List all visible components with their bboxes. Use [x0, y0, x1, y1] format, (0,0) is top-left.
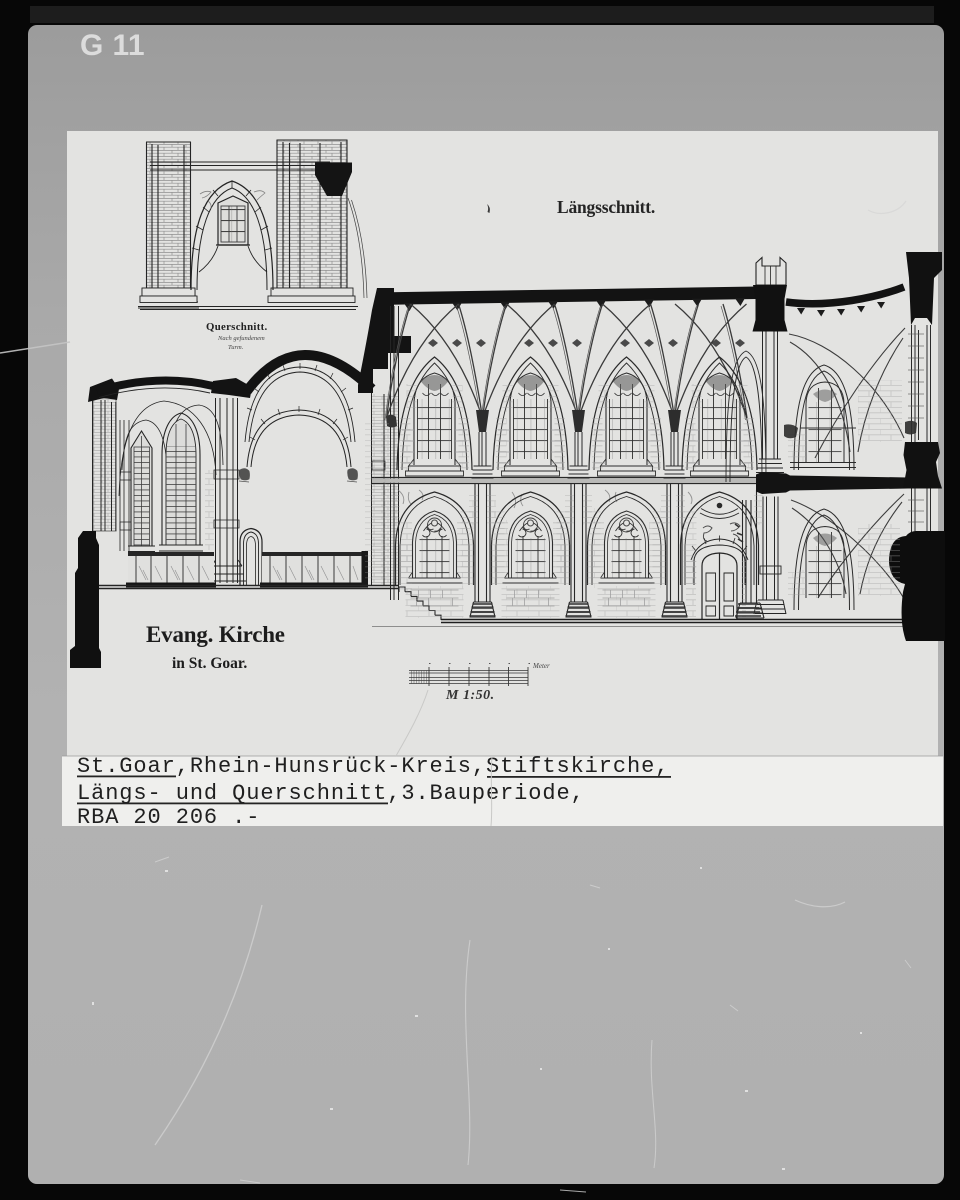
svg-text:Nach gefundenem: Nach gefundenem — [217, 335, 265, 342]
svg-text:Evang. Kirche: Evang. Kirche — [146, 622, 285, 647]
svg-text:Turm.: Turm. — [228, 344, 244, 351]
svg-text:Längsschnitt.: Längsschnitt. — [557, 197, 655, 217]
svg-text:G 11: G 11 — [80, 29, 145, 62]
svg-text:in St. Goar.: in St. Goar. — [172, 655, 247, 672]
svg-text:Längs- und Querschnitt,3.Baupe: Längs- und Querschnitt,3.Bauperiode, — [77, 781, 585, 806]
svg-text:Querschnitt.: Querschnitt. — [206, 321, 267, 333]
svg-text:RBA 20 206 .-: RBA 20 206 .- — [77, 805, 260, 830]
svg-text:M 1:50.: M 1:50. — [445, 688, 495, 703]
svg-text:St.Goar,Rhein-Hunsrück-Kreis,S: St.Goar,Rhein-Hunsrück-Kreis,Stiftskirch… — [77, 754, 669, 779]
svg-text:Meter: Meter — [532, 662, 550, 670]
